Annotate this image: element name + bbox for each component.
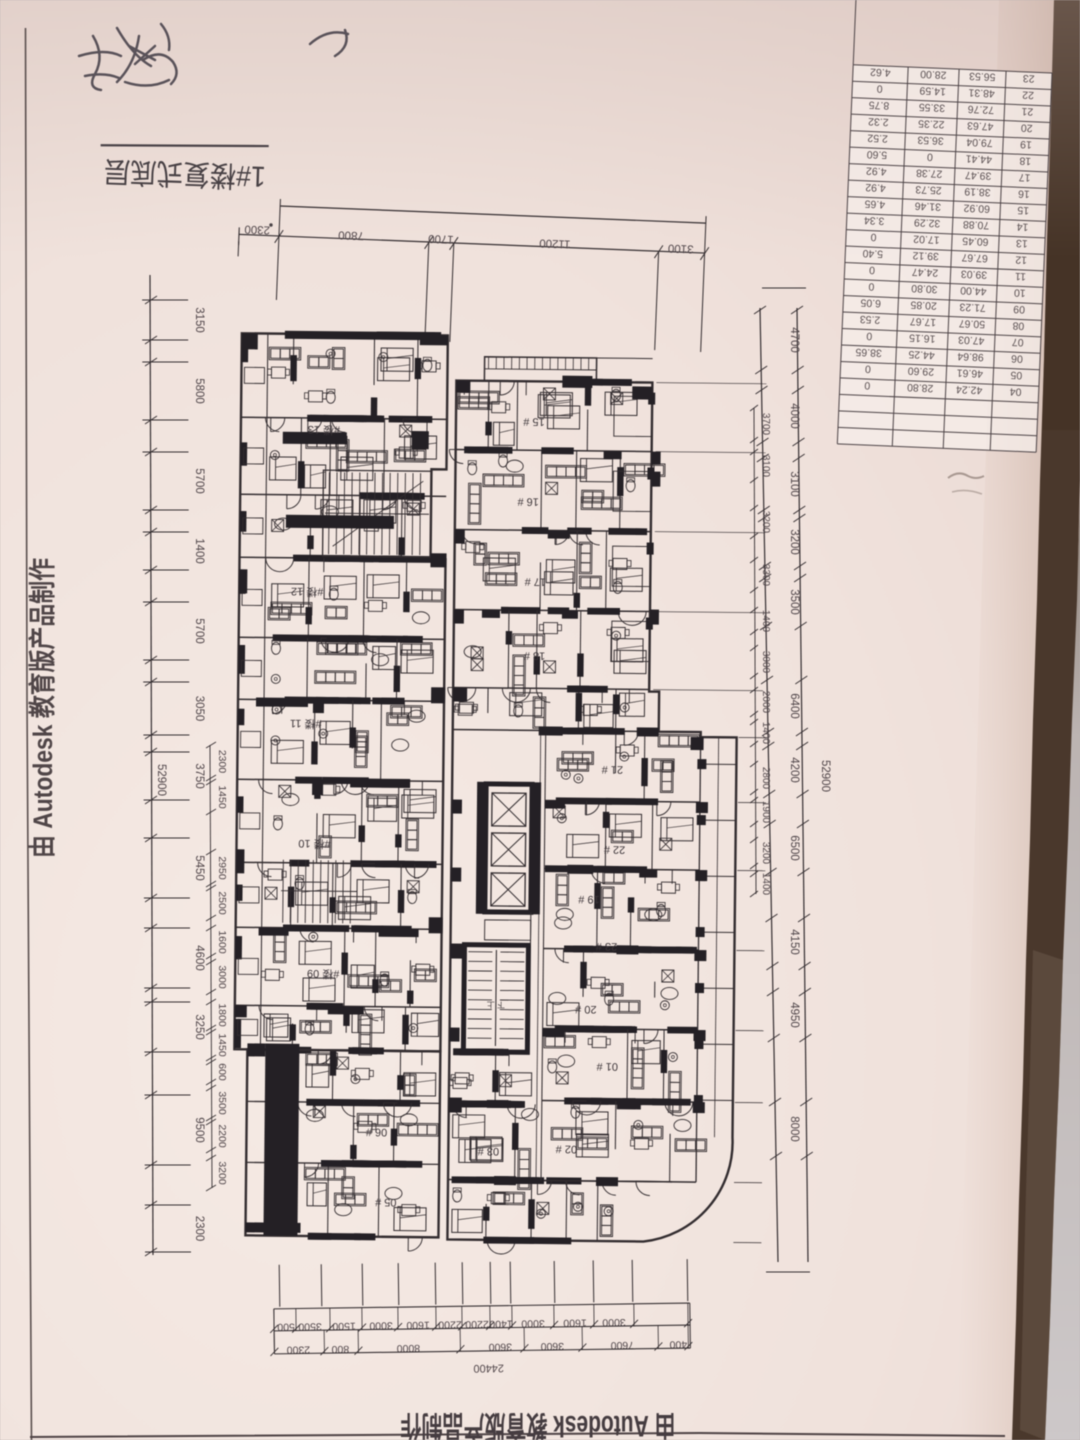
svg-text:1600: 1600: [216, 930, 228, 954]
svg-text:09: 09: [1013, 303, 1025, 315]
svg-text:24400: 24400: [473, 1362, 504, 1374]
svg-text:10: 10: [1014, 286, 1026, 298]
svg-text:3500: 3500: [788, 589, 800, 615]
svg-text:33.55: 33.55: [918, 101, 945, 114]
svg-text:17 #: 17 #: [524, 575, 546, 587]
svg-text:32.29: 32.29: [914, 216, 941, 229]
svg-text:17: 17: [1018, 171, 1030, 183]
svg-text:29.60: 29.60: [907, 364, 934, 377]
svg-text:17.67: 17.67: [909, 315, 936, 328]
svg-text:5700: 5700: [193, 468, 205, 494]
svg-text:3100: 3100: [668, 242, 694, 255]
svg-text:02 #: 02 #: [555, 1143, 577, 1155]
svg-text:23 #: 23 #: [595, 940, 617, 952]
svg-text:4600: 4600: [193, 945, 205, 971]
svg-text:05: 05: [1010, 369, 1022, 381]
svg-text:21: 21: [1021, 105, 1033, 117]
svg-text:44.00: 44.00: [960, 284, 987, 297]
svg-text:21 #: 21 #: [601, 763, 623, 775]
svg-text:9500: 9500: [193, 1117, 205, 1143]
svg-text:3700: 3700: [760, 413, 771, 436]
svg-text:4.65: 4.65: [864, 198, 885, 211]
svg-text:72.76: 72.76: [967, 103, 994, 116]
svg-text:20: 20: [1020, 121, 1032, 133]
svg-text:4000: 4000: [788, 403, 800, 429]
svg-text:4700: 4700: [788, 327, 800, 353]
svg-text:8000: 8000: [788, 1116, 800, 1142]
svg-text:52900: 52900: [819, 760, 831, 792]
svg-text:67.67: 67.67: [961, 251, 988, 264]
svg-text:25.73: 25.73: [915, 183, 942, 196]
svg-text:2.32: 2.32: [868, 115, 889, 128]
svg-text:2.52: 2.52: [867, 132, 888, 145]
svg-text:44.25: 44.25: [908, 348, 935, 361]
svg-text:0: 0: [870, 231, 876, 243]
svg-text:1#楼复式底层: 1#楼复式底层: [103, 154, 266, 193]
svg-text:2200: 2200: [216, 1124, 228, 1148]
svg-text:3100: 3100: [788, 471, 800, 497]
svg-text:15 #: 15 #: [522, 415, 544, 427]
svg-text:27.38: 27.38: [916, 167, 943, 180]
svg-text:14: 14: [1016, 220, 1028, 232]
svg-text:07: 07: [1012, 336, 1024, 348]
svg-text:13: 13: [1016, 237, 1028, 249]
svg-text:19 #: 19 #: [577, 893, 599, 905]
svg-text:19: 19: [1020, 138, 1032, 150]
svg-text:71.23: 71.23: [959, 301, 986, 314]
svg-text:30.80: 30.80: [911, 282, 938, 295]
svg-text:5.60: 5.60: [866, 148, 887, 161]
svg-text:31.46: 31.46: [914, 200, 941, 213]
svg-text:23: 23: [1023, 72, 1035, 84]
svg-text:3250: 3250: [193, 1014, 205, 1040]
svg-text:#楼 13: #楼 13: [308, 423, 341, 437]
svg-text:1800: 1800: [216, 1003, 228, 1027]
svg-text:600: 600: [216, 1063, 228, 1081]
svg-text:4.92: 4.92: [866, 165, 887, 178]
svg-text:28.00: 28.00: [920, 68, 947, 81]
svg-text:50.67: 50.67: [958, 317, 985, 330]
svg-text:60.45: 60.45: [962, 235, 989, 248]
svg-text:08: 08: [1012, 319, 1024, 331]
svg-text:0: 0: [865, 363, 871, 375]
svg-text:98.64: 98.64: [957, 350, 984, 363]
svg-text:3500: 3500: [216, 1091, 228, 1115]
svg-text:42.24: 42.24: [956, 383, 983, 396]
svg-text:2.53: 2.53: [859, 313, 880, 326]
svg-text:20 #: 20 #: [574, 1003, 596, 1015]
svg-text:17.02: 17.02: [913, 233, 940, 246]
svg-text:2800: 2800: [760, 767, 771, 790]
svg-text:56.53: 56.53: [969, 70, 996, 83]
svg-text:79.04: 79.04: [966, 136, 993, 149]
svg-text:39.12: 39.12: [912, 249, 939, 262]
svg-text:3000: 3000: [760, 651, 771, 674]
svg-text:1450: 1450: [216, 1033, 228, 1057]
svg-text:由 Autodesk 教育版产品制作: 由 Autodesk 教育版产品制作: [401, 1409, 676, 1440]
svg-text:2500: 2500: [216, 891, 228, 915]
svg-text:18: 18: [1019, 154, 1031, 166]
svg-text:6400: 6400: [788, 693, 800, 719]
svg-text:18 #: 18 #: [523, 649, 545, 661]
svg-text:3200: 3200: [760, 511, 771, 534]
svg-text:1400: 1400: [760, 610, 771, 633]
svg-text:1400: 1400: [760, 873, 771, 896]
svg-text:3200: 3200: [216, 1161, 228, 1185]
svg-text:36.53: 36.53: [917, 134, 944, 147]
svg-text:#楼 10: #楼 10: [298, 837, 331, 851]
svg-text:0: 0: [927, 151, 933, 163]
svg-text:3100: 3100: [760, 455, 771, 478]
svg-text:38.65: 38.65: [855, 346, 882, 359]
svg-text:下 上: 下 上: [487, 1000, 505, 1009]
svg-text:3150: 3150: [193, 307, 205, 333]
svg-text:8.75: 8.75: [868, 99, 889, 112]
svg-text:3050: 3050: [193, 696, 205, 722]
svg-text:15: 15: [1017, 204, 1029, 216]
svg-text:47.63: 47.63: [967, 119, 994, 132]
svg-text:05 #: 05 #: [374, 1196, 396, 1208]
svg-text:由 Autodesk 教育版产品制作: 由 Autodesk 教育版产品制作: [27, 558, 58, 858]
svg-text:16 #: 16 #: [516, 495, 538, 507]
svg-text:3200: 3200: [788, 529, 800, 555]
svg-text:2300: 2300: [216, 750, 228, 774]
svg-text:#楼 11: #楼 11: [290, 717, 322, 731]
svg-text:5700: 5700: [193, 618, 205, 644]
svg-text:#楼 12: #楼 12: [291, 585, 324, 599]
svg-text:3750: 3750: [193, 763, 205, 789]
svg-text:1450: 1450: [216, 785, 228, 809]
svg-text:46.61: 46.61: [956, 367, 983, 380]
svg-text:38.19: 38.19: [964, 185, 991, 198]
svg-text:16: 16: [1018, 187, 1030, 199]
svg-text:4.62: 4.62: [870, 66, 891, 79]
svg-text:1400: 1400: [760, 722, 771, 745]
svg-text:70.88: 70.88: [963, 218, 990, 231]
svg-text:0: 0: [866, 330, 872, 342]
svg-text:06 #: 06 #: [365, 1126, 387, 1138]
svg-text:1400: 1400: [193, 538, 205, 564]
svg-text:20.85: 20.85: [910, 299, 937, 312]
svg-text:4150: 4150: [788, 929, 800, 955]
svg-text:28.80: 28.80: [907, 381, 934, 394]
svg-text:5.40: 5.40: [862, 247, 883, 260]
svg-text:24.47: 24.47: [912, 266, 939, 279]
svg-text:5450: 5450: [193, 855, 205, 881]
svg-text:2300: 2300: [193, 1216, 205, 1242]
svg-text:#楼 09: #楼 09: [307, 967, 340, 981]
svg-text:22: 22: [1022, 89, 1034, 101]
svg-text:2300: 2300: [244, 223, 270, 236]
svg-text:6500: 6500: [788, 835, 800, 861]
svg-text:48.31: 48.31: [968, 86, 995, 99]
svg-text:3200: 3200: [760, 842, 771, 865]
svg-text:11200: 11200: [539, 236, 571, 249]
svg-text:4950: 4950: [788, 1002, 800, 1028]
svg-text:39.03: 39.03: [961, 268, 988, 281]
svg-text:04: 04: [1009, 385, 1021, 397]
svg-text:1900: 1900: [760, 801, 771, 824]
svg-text:47.03: 47.03: [958, 334, 985, 347]
svg-text:39.47: 39.47: [965, 169, 992, 182]
svg-text:0: 0: [876, 82, 882, 94]
svg-text:0: 0: [864, 379, 870, 391]
svg-text:12: 12: [1015, 253, 1027, 265]
svg-text:0: 0: [869, 264, 875, 276]
svg-text:6.05: 6.05: [860, 296, 881, 309]
svg-text:4200: 4200: [788, 757, 800, 783]
svg-text:5800: 5800: [193, 378, 205, 404]
svg-text:22.35: 22.35: [918, 117, 945, 130]
svg-text:16.15: 16.15: [909, 331, 936, 344]
svg-text:7800: 7800: [338, 228, 364, 241]
svg-text:2950: 2950: [216, 856, 228, 880]
svg-text:14.59: 14.59: [919, 84, 946, 97]
svg-text:0: 0: [868, 280, 874, 292]
svg-text:2000: 2000: [760, 691, 771, 714]
svg-text:06: 06: [1011, 352, 1023, 364]
svg-text:52900: 52900: [155, 764, 167, 796]
svg-text:1700: 1700: [428, 232, 454, 245]
svg-text:3.34: 3.34: [864, 214, 885, 227]
svg-text:11: 11: [1015, 270, 1027, 282]
svg-text:60.92: 60.92: [963, 202, 990, 215]
svg-text:01 #: 01 #: [596, 1060, 618, 1072]
svg-text:22 #: 22 #: [603, 843, 625, 855]
svg-text:3300: 3300: [760, 564, 771, 587]
svg-text:44.41: 44.41: [965, 152, 992, 165]
svg-text:3000: 3000: [216, 965, 228, 989]
svg-text:4.92: 4.92: [865, 181, 886, 194]
